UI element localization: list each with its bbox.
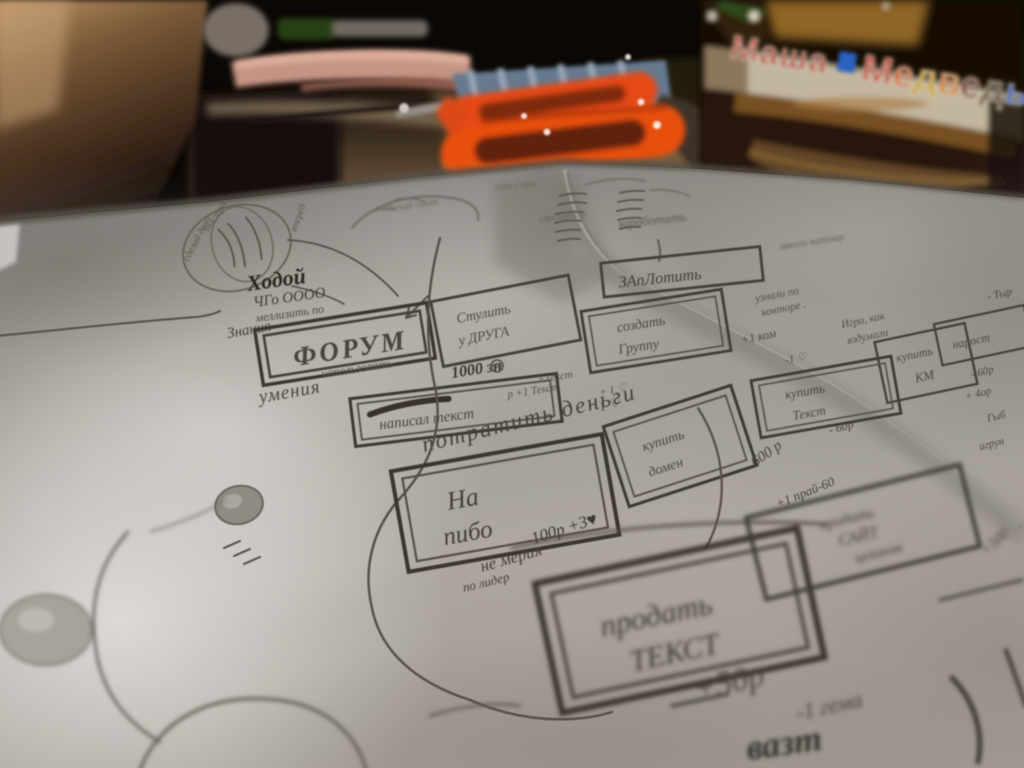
svg-text:На: На (444, 482, 481, 516)
